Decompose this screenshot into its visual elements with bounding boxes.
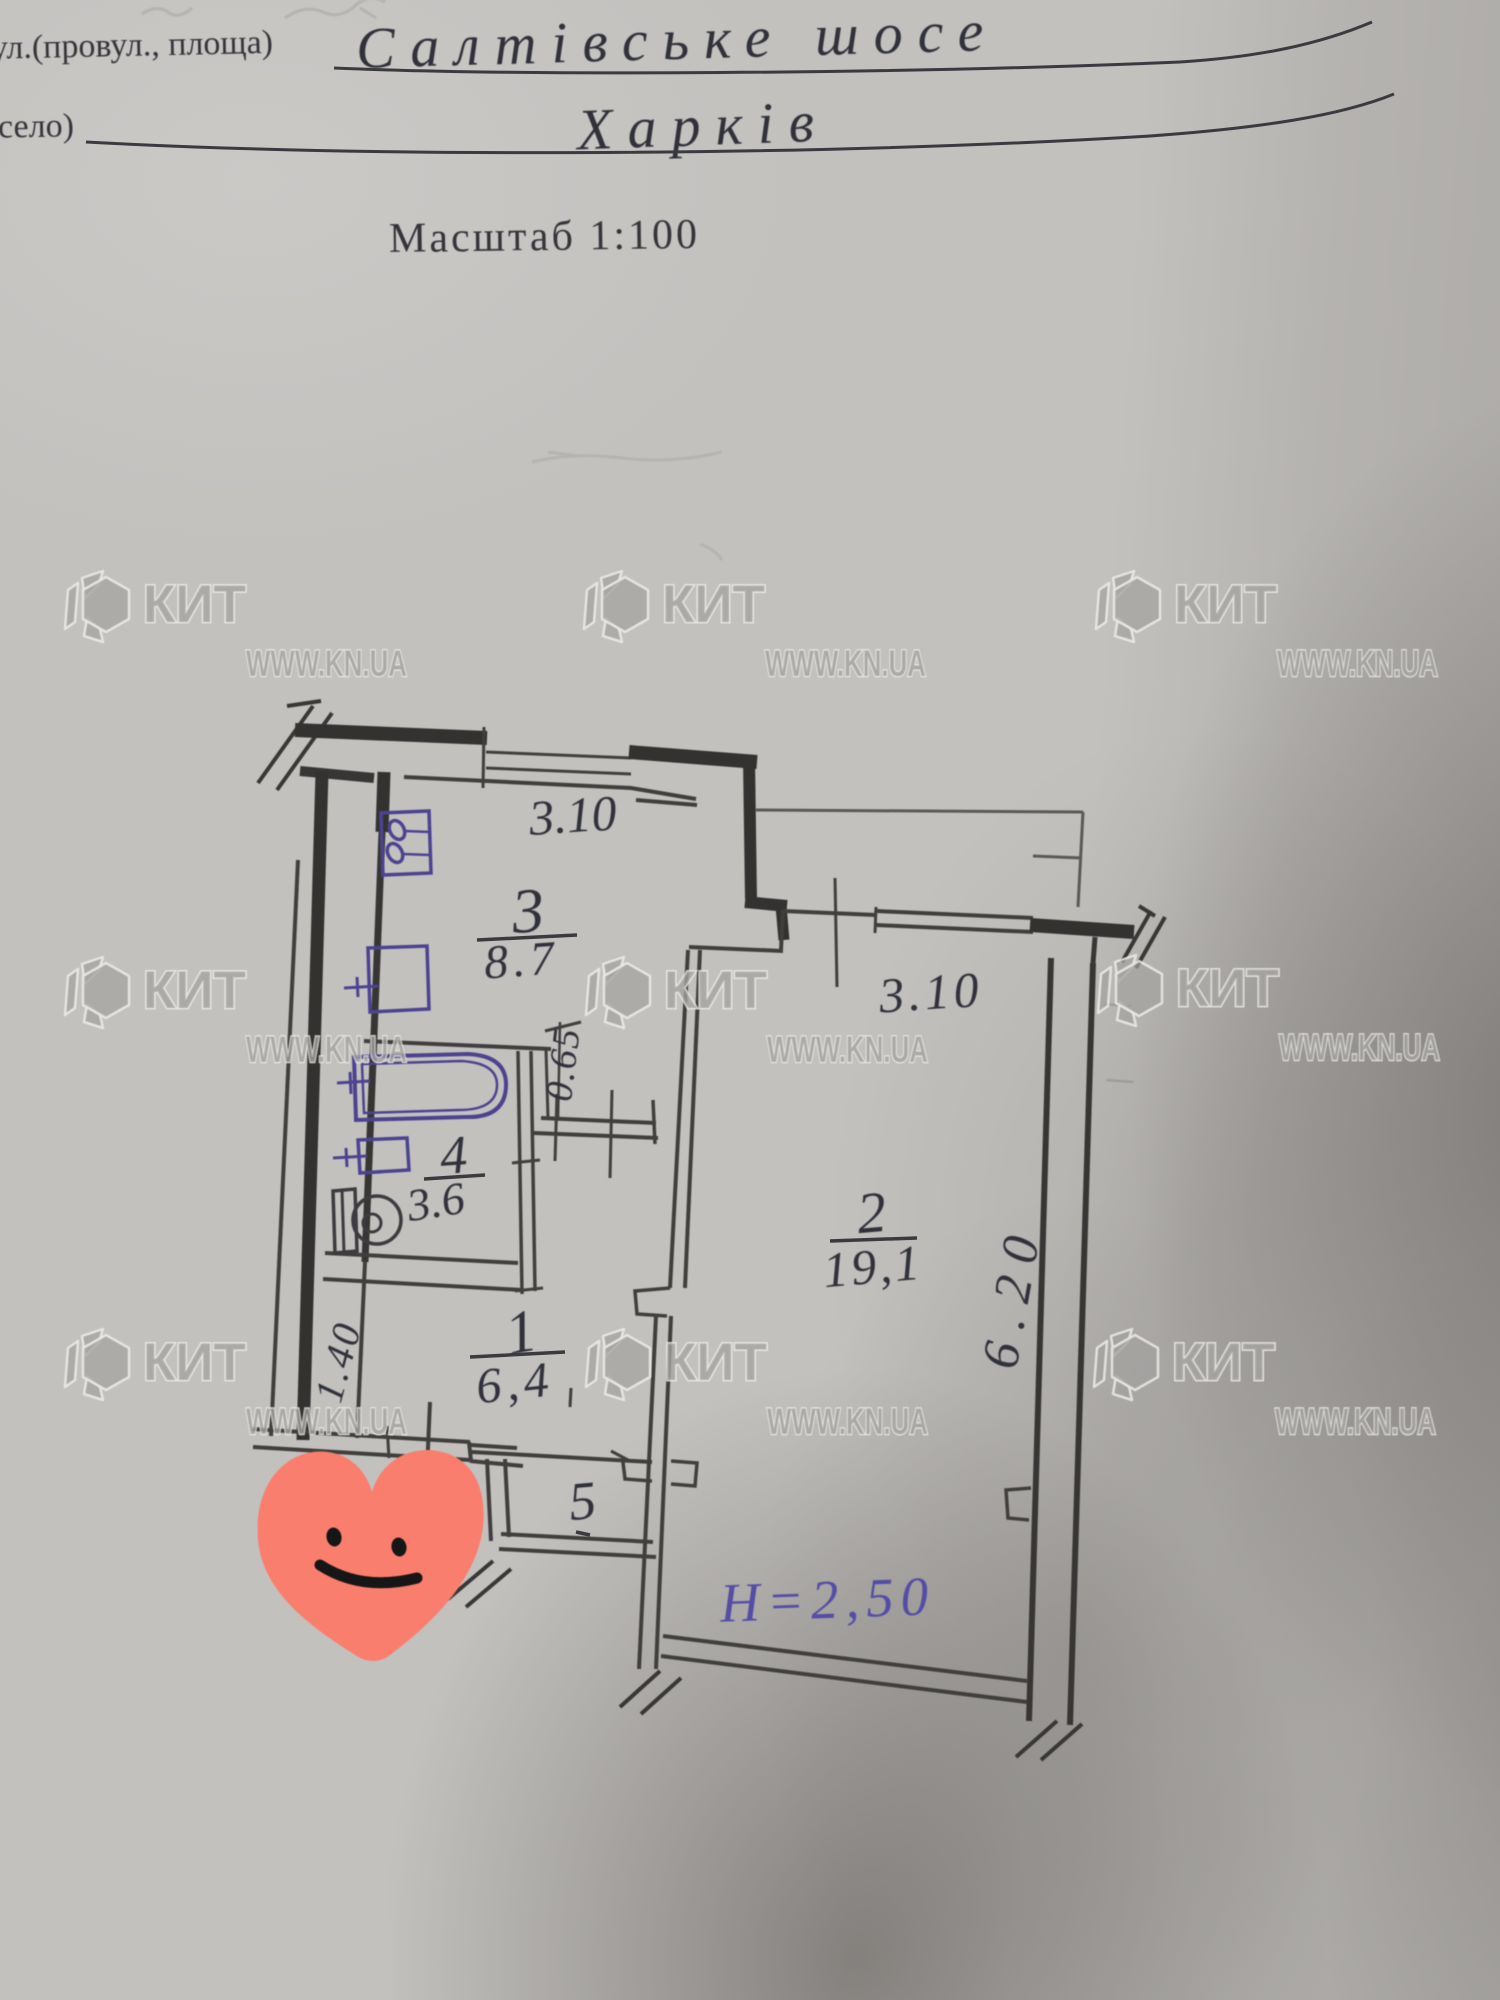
svg-text:WWW.KN.UA: WWW.KN.UA xyxy=(246,1029,407,1070)
svg-text:КИТ: КИТ xyxy=(143,575,246,634)
svg-text:КИТ: КИТ xyxy=(1176,959,1279,1018)
svg-text:КИТ: КИТ xyxy=(1172,1333,1275,1392)
svg-text:WWW.KN.UA: WWW.KN.UA xyxy=(246,1401,407,1442)
svg-text:КИТ: КИТ xyxy=(1174,575,1277,634)
svg-text:WWW.KN.UA: WWW.KN.UA xyxy=(765,643,926,684)
svg-text:WWW.KN.UA: WWW.KN.UA xyxy=(767,1029,928,1070)
svg-text:WWW.KN.UA: WWW.KN.UA xyxy=(1275,1401,1436,1442)
svg-text:КИТ: КИТ xyxy=(143,961,246,1020)
svg-text:WWW.KN.UA: WWW.KN.UA xyxy=(767,1401,928,1442)
svg-text:КИТ: КИТ xyxy=(662,575,765,634)
svg-text:КИТ: КИТ xyxy=(143,1333,246,1392)
svg-text:КИТ: КИТ xyxy=(664,961,767,1020)
svg-text:WWW.KN.UA: WWW.KN.UA xyxy=(246,643,407,684)
svg-text:WWW.KN.UA: WWW.KN.UA xyxy=(1277,643,1438,684)
svg-text:КИТ: КИТ xyxy=(664,1333,767,1392)
svg-text:WWW.KN.UA: WWW.KN.UA xyxy=(1279,1027,1440,1068)
